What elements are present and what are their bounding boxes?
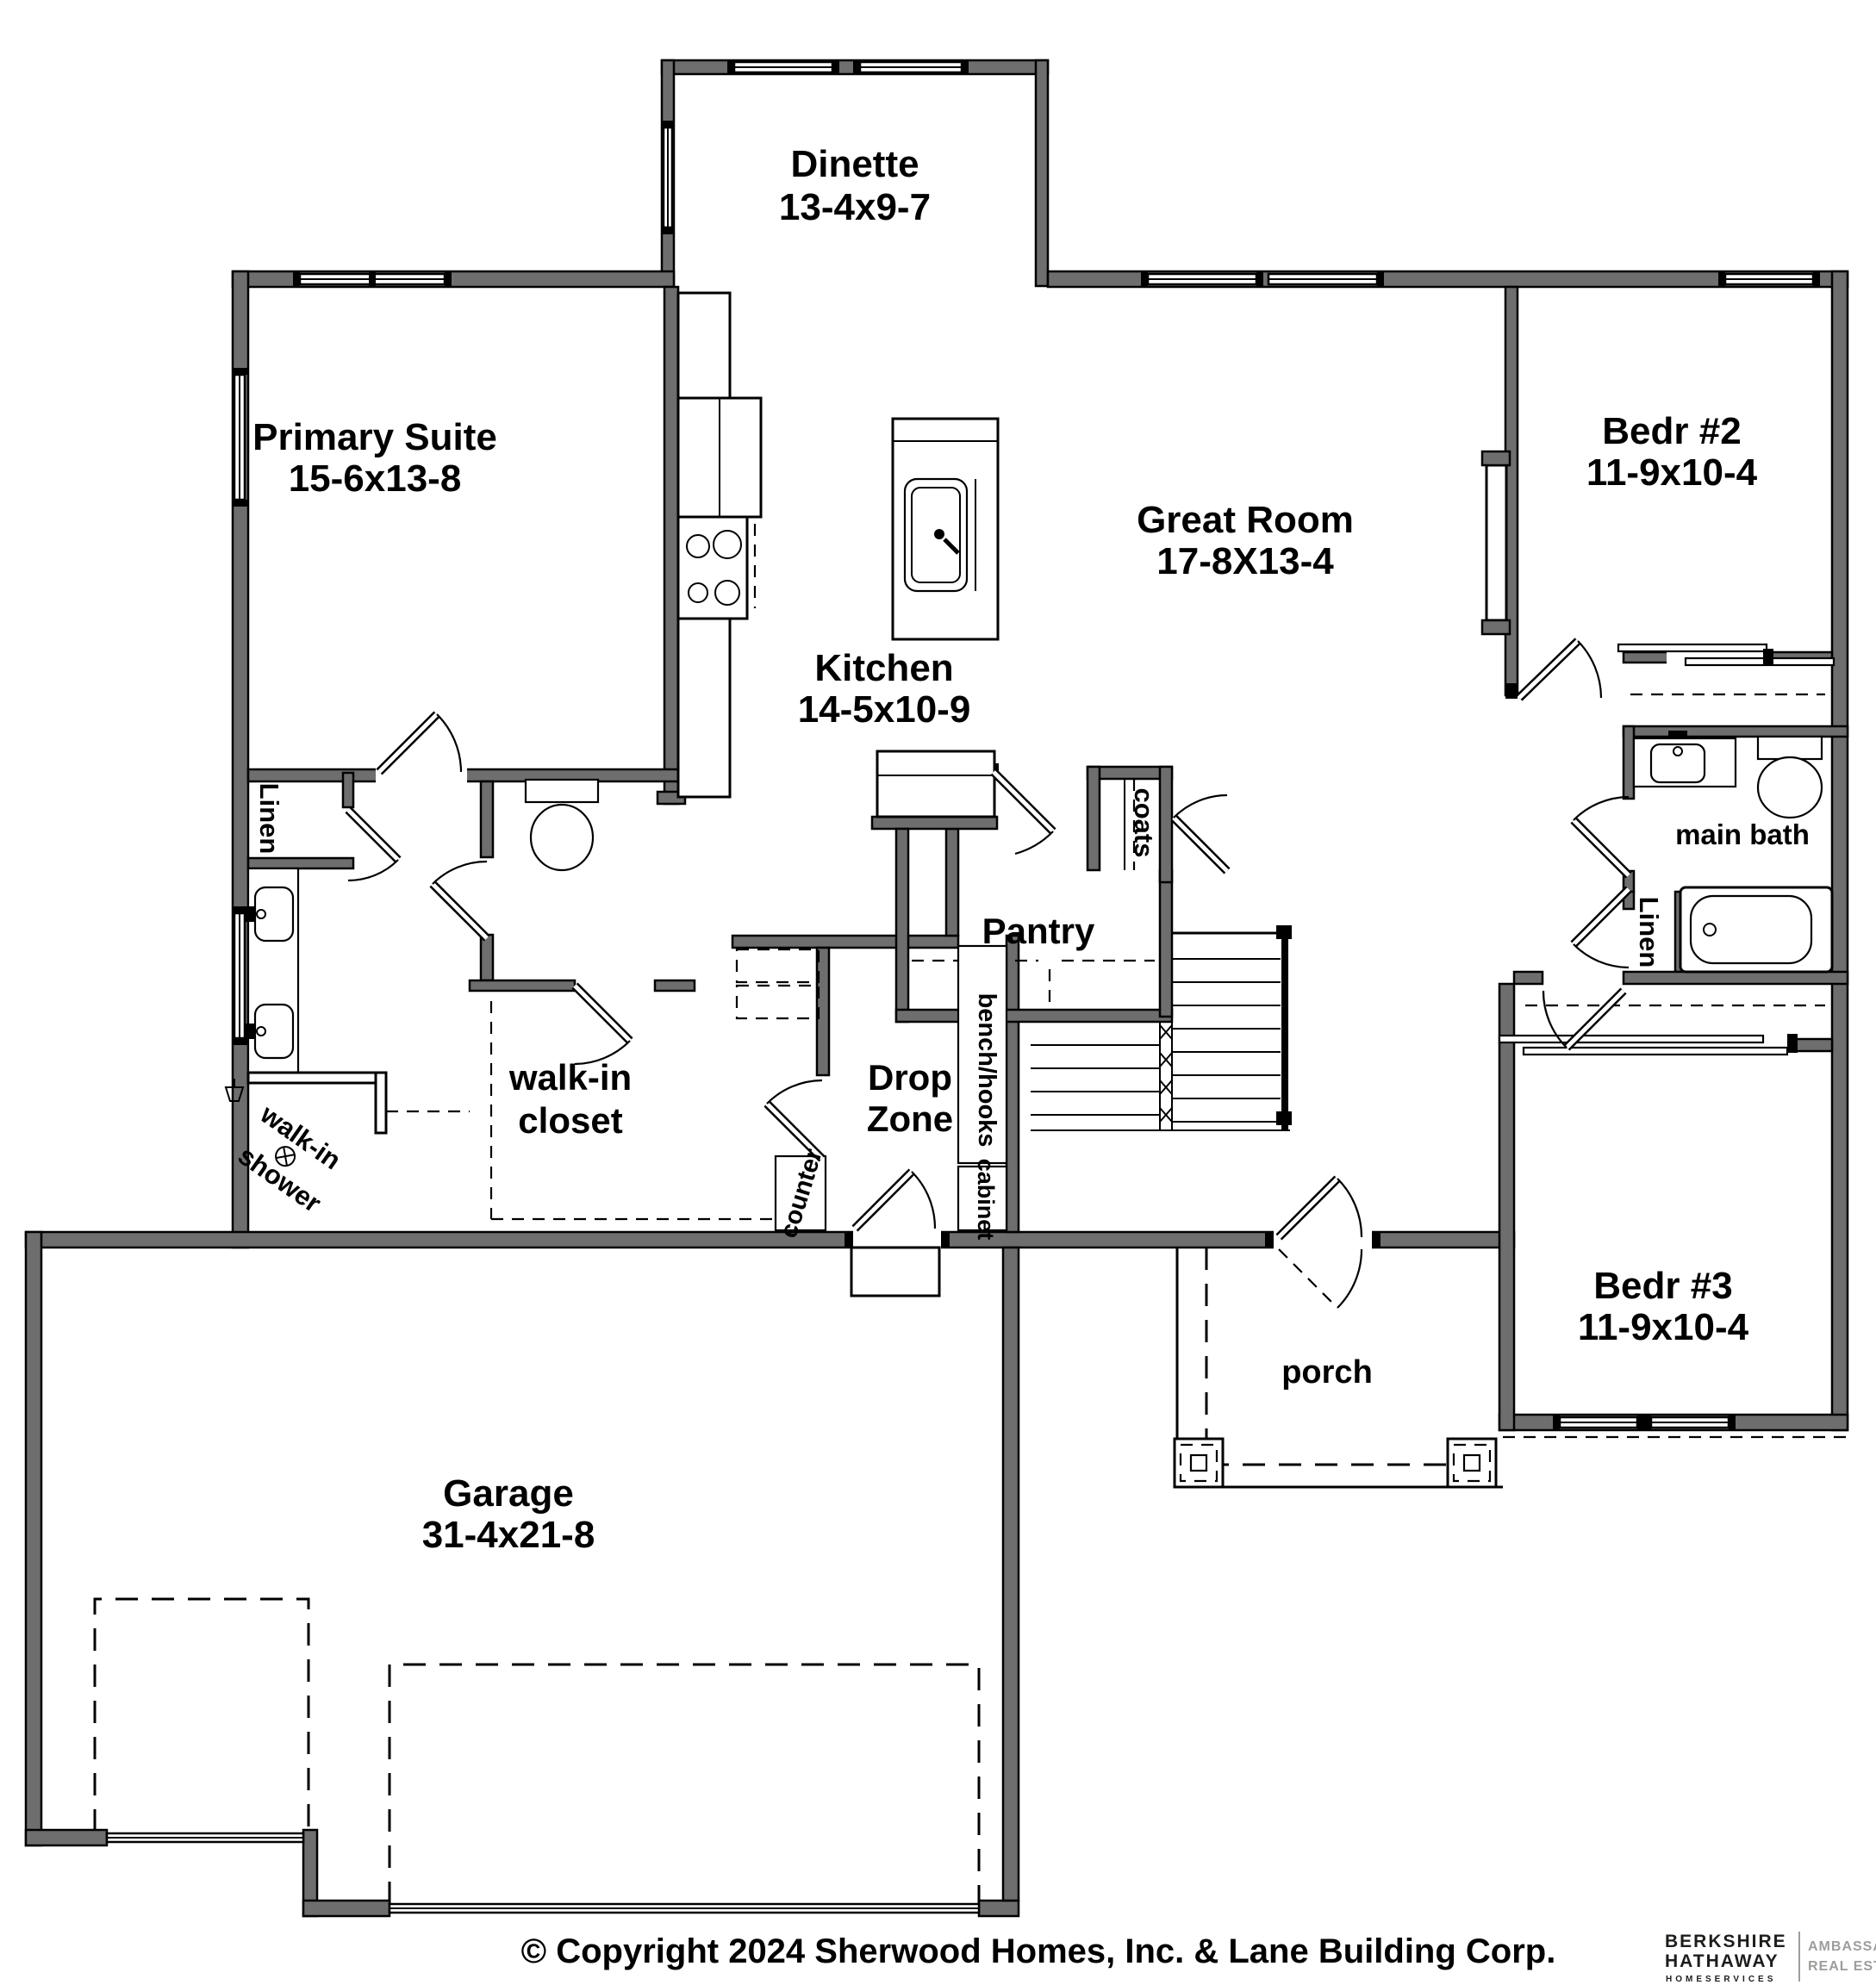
- toilet-icon: [526, 780, 598, 802]
- label-coats: coats: [1129, 788, 1159, 858]
- great-room-niche: [1482, 451, 1510, 634]
- floor-plan-page: Dinette 13-4x9-7 Primary Suite 15-6x13-8…: [0, 0, 1876, 1985]
- wall-segment: [1624, 972, 1848, 984]
- wall-segment: [303, 1901, 390, 1916]
- wall-segment: [1003, 1248, 1019, 1901]
- wall-segment: [1160, 767, 1172, 882]
- room-dims-bedroom3: 11-9x10-4: [1578, 1306, 1749, 1348]
- wall-segment: [1832, 271, 1848, 1430]
- room-dims-bedroom2: 11-9x10-4: [1586, 451, 1758, 494]
- room-label-walkin-closet-1: walk-in: [508, 1057, 632, 1098]
- wall-segment: [470, 980, 575, 991]
- logo-ambassador: AMBASSADOR: [1808, 1939, 1876, 1954]
- wall-segment: [732, 936, 958, 948]
- label-bench-hooks: bench/hooks: [973, 993, 1000, 1148]
- floor-plan-drawing: Dinette 13-4x9-7 Primary Suite 15-6x13-8…: [0, 0, 1876, 1985]
- wall-segment: [248, 858, 353, 868]
- wall-segment: [1624, 726, 1848, 737]
- logo-real-estate: REAL ESTATE: [1808, 1959, 1876, 1974]
- room-label-garage: Garage: [443, 1472, 574, 1515]
- room-label-kitchen: Kitchen: [814, 647, 953, 689]
- door-garage-dropzone: [855, 1172, 935, 1229]
- room-label-drop: Drop: [868, 1057, 952, 1098]
- wall-segment: [896, 829, 908, 1022]
- shower-wall: [248, 1073, 386, 1083]
- wall-segment: [481, 935, 493, 980]
- door-pantry: [994, 772, 1053, 854]
- room-dims-great-room: 17-8X13-4: [1156, 540, 1334, 582]
- shower-wall: [376, 1073, 386, 1133]
- wall-segment: [343, 773, 353, 807]
- room-label-pantry: Pantry: [982, 911, 1095, 951]
- door-coats: [1174, 795, 1227, 871]
- closet-bypass-door-icon: [1618, 644, 1767, 651]
- wall-segment: [1514, 972, 1543, 984]
- sink-icon: [1651, 744, 1705, 782]
- sink-icon: [255, 1005, 293, 1058]
- closet-shelf: [1499, 1036, 1763, 1042]
- logo-berkshire: BERKSHIRE: [1665, 1932, 1787, 1951]
- wall-segment: [1624, 726, 1634, 799]
- door-bedroom2: [1519, 641, 1601, 698]
- wall-segment: [1036, 60, 1048, 286]
- closet-shelf: [737, 949, 819, 982]
- garage-parking-outlines: [95, 1599, 979, 1904]
- closet-bypass-door-icon: [1686, 658, 1834, 665]
- wall-segment: [664, 287, 678, 804]
- stair-rail: [1281, 930, 1288, 1130]
- copyright-text: © Copyright 2024 Sherwood Homes, Inc. & …: [521, 1932, 1556, 1970]
- wall-segment: [1796, 1039, 1832, 1051]
- door-closet-dropzone: [767, 1080, 822, 1159]
- wall-segment: [1088, 767, 1100, 870]
- label-linen-primary: Linen: [254, 783, 284, 855]
- door-linen-hall: [1574, 889, 1629, 968]
- sink-icon: [255, 887, 293, 941]
- wall-segment: [979, 1901, 1019, 1916]
- wall-segment: [1007, 936, 1019, 1232]
- room-label-primary-suite: Primary Suite: [252, 416, 497, 458]
- room-dims-garage: 31-4x21-8: [422, 1514, 595, 1556]
- room-label-zone: Zone: [867, 1098, 953, 1139]
- logo-hathaway: HATHAWAY: [1665, 1951, 1779, 1971]
- brokerage-logo: BERKSHIRE HATHAWAY HOMESERVICES AMBASSAD…: [1665, 1932, 1876, 1984]
- logo-homeservices: HOMESERVICES: [1666, 1975, 1776, 1984]
- wall-segment: [655, 980, 695, 991]
- wall-segment: [26, 1232, 41, 1845]
- door-linen-primary: [348, 810, 398, 880]
- wall-segment: [26, 1830, 107, 1845]
- garage-doors: [107, 1833, 979, 1913]
- room-label-porch: porch: [1281, 1354, 1373, 1391]
- closet-shelf: [737, 986, 819, 1018]
- toilet-icon: [1758, 737, 1822, 759]
- room-label-walkin-closet-2: closet: [518, 1100, 622, 1141]
- door-walk-in-closet: [575, 986, 630, 1064]
- exterior-walls: [26, 60, 1848, 1916]
- room-label-dinette: Dinette: [790, 143, 919, 185]
- closet-shelf: [1524, 1048, 1787, 1055]
- stair-break-hatch: [1160, 1025, 1172, 1122]
- door-primary-suite-bath: [379, 714, 461, 772]
- room-label-bedroom2: Bedr #2: [1602, 410, 1741, 452]
- door-openings: [376, 644, 1834, 1249]
- garage-step-icon: [851, 1248, 939, 1296]
- wall-segment: [1160, 870, 1172, 1017]
- label-linen-hall: Linen: [1634, 897, 1664, 968]
- footer: © Copyright 2024 Sherwood Homes, Inc. & …: [521, 1932, 1876, 1984]
- peninsula-counter-icon: [877, 751, 994, 817]
- room-label-bedroom3: Bedr #3: [1593, 1265, 1732, 1307]
- stove-icon: [678, 517, 747, 619]
- room-dims-primary-suite: 15-6x13-8: [289, 457, 462, 500]
- room-label-great-room: Great Room: [1137, 499, 1354, 541]
- wall-segment: [946, 829, 958, 936]
- wall-segment: [1499, 984, 1514, 1430]
- label-cabinet: cabinet: [973, 1159, 999, 1241]
- room-dims-dinette: 13-4x9-7: [779, 186, 931, 228]
- room-dims-kitchen: 14-5x10-9: [798, 688, 971, 731]
- wall-segment: [481, 781, 493, 857]
- kitchen-fixtures: [678, 293, 998, 817]
- wall-segment: [896, 1010, 1172, 1022]
- room-label-main-bath: main bath: [1675, 818, 1810, 850]
- door-main-bath: [1574, 797, 1629, 875]
- door-toilet-room: [433, 862, 487, 938]
- wall-segment: [872, 817, 997, 829]
